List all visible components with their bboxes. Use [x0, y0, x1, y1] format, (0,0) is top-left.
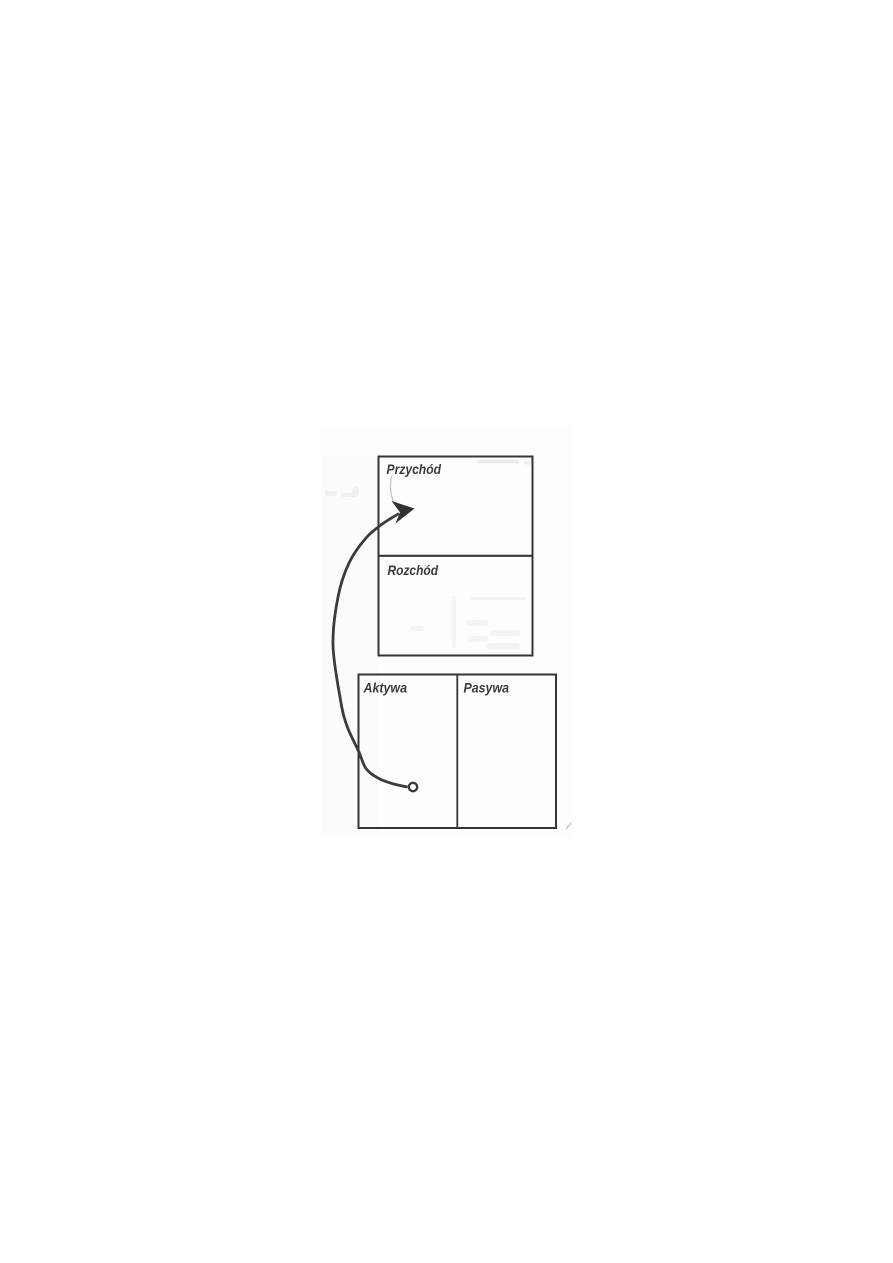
svg-text:Pasywa: Pasywa: [464, 680, 510, 696]
svg-text:Rozchód: Rozchód: [388, 562, 439, 578]
svg-text:Przychód: Przychód: [387, 461, 442, 477]
svg-text:Aktywa: Aktywa: [363, 680, 408, 696]
